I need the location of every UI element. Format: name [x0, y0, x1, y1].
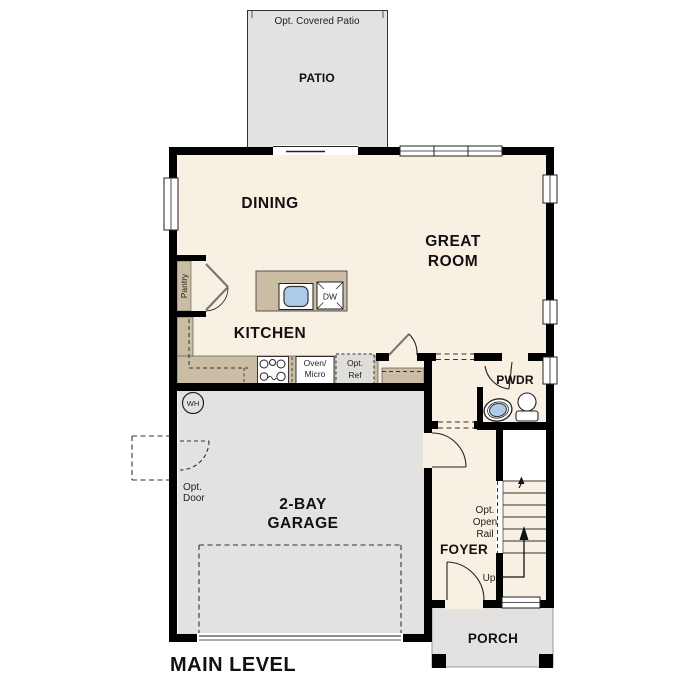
toilet — [516, 393, 538, 421]
porch-post-right — [539, 654, 553, 668]
opt-open-rail-label-line3: Rail — [476, 529, 493, 540]
dining-window — [164, 178, 178, 230]
kitchen-label: KITCHEN — [234, 325, 306, 342]
wall-pantry-bottom — [169, 311, 206, 317]
floor-plan-page: Opt. Covered Patio PATIO DINING GREAT RO… — [0, 0, 687, 687]
garage-label-line1: 2-BAY — [279, 496, 327, 513]
dishwasher-label: DW — [323, 292, 337, 302]
great-room-window-1 — [543, 175, 557, 203]
powder-label: PWDR — [496, 373, 534, 387]
main-level-title: MAIN LEVEL — [170, 654, 296, 676]
opt-open-rail-label-line2: Open — [473, 517, 497, 528]
opt-ref-label-line1: Opt. — [347, 358, 363, 368]
front-door-opening — [445, 599, 483, 609]
dining-label: DINING — [241, 195, 298, 212]
porch-post-left — [432, 654, 446, 668]
opt-ref-label-line2: Ref — [348, 370, 362, 380]
kitchen-hall-opening — [389, 352, 417, 362]
opt-covered-patio-label: Opt. Covered Patio — [274, 16, 359, 27]
patio-label: PATIO — [299, 71, 335, 85]
floor-plan: Opt. Covered Patio PATIO DINING GREAT RO… — [0, 0, 687, 687]
wall-hall-stub-left — [432, 421, 438, 429]
opt-door-label-line1: Opt. — [183, 482, 202, 493]
wall-pantry-top — [169, 255, 206, 261]
great-room-label-line2: ROOM — [428, 253, 478, 270]
water-heater-label: WH — [187, 399, 200, 408]
stair-window — [502, 597, 540, 608]
wall-stair-upper — [496, 429, 503, 481]
oven-micro-label-line1: Oven/ — [304, 358, 327, 368]
oven-micro-label-line2: Micro — [305, 369, 326, 379]
garage-label-line2: GARAGE — [267, 515, 338, 532]
opt-open-rail-label-line1: Opt. — [476, 505, 495, 516]
great-room-label-line1: GREAT — [425, 233, 481, 250]
great-room-window-2 — [543, 300, 557, 324]
wall-kitchen-hall-2 — [417, 353, 436, 361]
wall-kitchen-hall-1 — [376, 353, 389, 361]
great-room-triple-window — [400, 146, 502, 156]
powder-window — [543, 357, 557, 384]
wall-powder-top-left — [474, 353, 502, 361]
wall-powder-bottom — [477, 422, 554, 430]
range-stove — [258, 357, 289, 384]
wall-garage-right — [424, 353, 432, 642]
island-sink — [279, 284, 313, 310]
entry-bench-counter — [382, 368, 424, 384]
patio-slider-door — [273, 145, 358, 155]
garage-door-opening — [197, 633, 403, 643]
pantry-label: Pantry — [179, 273, 189, 298]
garage-entry-opening — [423, 433, 433, 468]
wall-garage-top — [169, 383, 432, 391]
stairs-up-label: Up — [483, 573, 496, 584]
foyer-label: FOYER — [440, 542, 488, 557]
wall-powder-left — [477, 387, 483, 430]
porch-label: PORCH — [468, 631, 518, 646]
powder-door-opening — [502, 352, 528, 362]
opt-door-label-line2: Door — [183, 493, 205, 504]
